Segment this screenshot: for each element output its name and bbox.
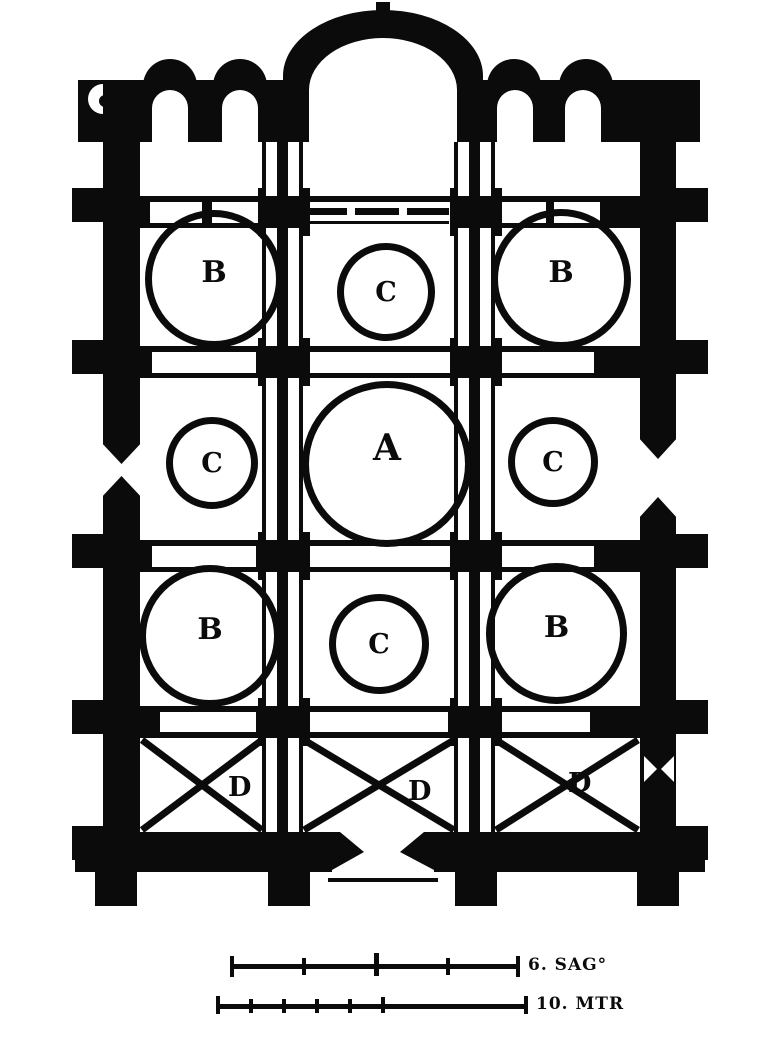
dome-circle-se: B (486, 563, 627, 704)
scale-tick (524, 996, 528, 1014)
scale-tick (374, 953, 379, 976)
dome-label-center: A (373, 430, 401, 466)
narthex-bay-label: D (228, 774, 251, 801)
floor-plan-engraving: B C B C A C B C B D D D 6. SAG° 10. MTR (0, 0, 775, 1041)
dome-label-e: C (542, 449, 564, 476)
dome-label-sw: B (197, 615, 222, 645)
narthex-bay-label: D (568, 770, 591, 797)
dome-circle-sw: B (139, 565, 281, 707)
dome-circle-e: C (508, 417, 598, 507)
scale-tick (282, 999, 286, 1013)
scale-tick (230, 956, 234, 977)
dome-circle-nw: B (145, 210, 283, 348)
scale-tick (249, 999, 253, 1013)
dome-label-nw: B (201, 258, 226, 288)
dome-circle-s: C (329, 594, 429, 694)
scale-label-metre: 10. MTR (536, 994, 624, 1014)
narthex-bay-label: D (408, 778, 431, 805)
dome-label-w: C (201, 450, 223, 477)
dome-circle-n: C (337, 243, 435, 341)
scale-tick (216, 996, 220, 1014)
scale-tick (381, 997, 385, 1013)
scale-tick (516, 956, 520, 977)
scale-tick (315, 999, 319, 1013)
dome-circle-center: A (302, 381, 472, 547)
scale-tick (348, 999, 352, 1013)
scale-label-sagene: 6. SAG° (528, 955, 607, 975)
dome-circle-w: C (166, 417, 258, 509)
scale-tick (302, 958, 306, 975)
dome-label-s: C (368, 631, 390, 658)
dome-label-n: C (375, 279, 397, 306)
scale-bar-metre-line (218, 1004, 528, 1009)
scale-tick (446, 958, 450, 975)
dome-label-se: B (544, 613, 569, 643)
dome-label-ne: B (548, 258, 573, 288)
dome-circle-ne: B (491, 209, 631, 349)
